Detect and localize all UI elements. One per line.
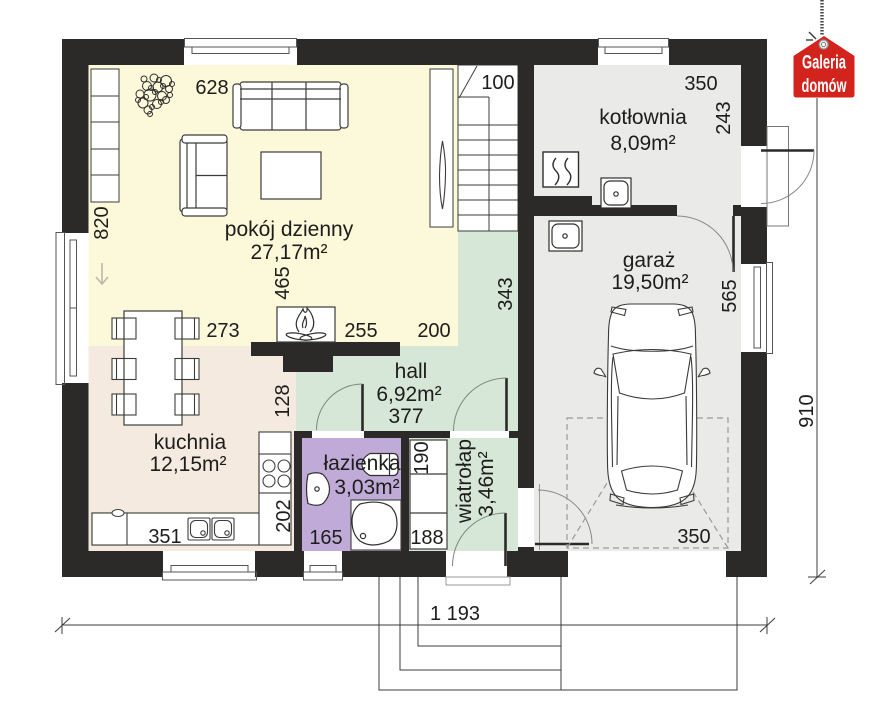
svg-text:351: 351 xyxy=(148,526,181,548)
svg-text:465: 465 xyxy=(272,266,294,299)
svg-text:377: 377 xyxy=(388,405,423,428)
svg-text:273: 273 xyxy=(206,320,239,342)
svg-text:1 193: 1 193 xyxy=(430,603,480,625)
svg-text:domów: domów xyxy=(802,76,847,97)
svg-text:kotłownia: kotłownia xyxy=(599,106,687,129)
svg-text:343: 343 xyxy=(495,277,517,310)
svg-text:350: 350 xyxy=(677,526,710,548)
svg-text:8,09m²: 8,09m² xyxy=(610,132,675,155)
svg-text:wiatrołap: wiatrołap xyxy=(453,439,476,524)
svg-text:garaż: garaż xyxy=(623,249,676,272)
svg-text:Galeria: Galeria xyxy=(802,53,846,74)
svg-text:12,15m²: 12,15m² xyxy=(149,453,226,476)
svg-text:202: 202 xyxy=(273,499,295,532)
svg-text:628: 628 xyxy=(195,77,228,99)
svg-text:100: 100 xyxy=(481,72,514,94)
svg-text:6,92m²: 6,92m² xyxy=(376,383,441,406)
svg-text:19,50m²: 19,50m² xyxy=(611,271,688,294)
svg-text:243: 243 xyxy=(713,101,735,134)
svg-text:3,46m²: 3,46m² xyxy=(475,451,498,516)
svg-text:350: 350 xyxy=(684,73,717,95)
svg-text:pokój dzienny: pokój dzienny xyxy=(225,218,354,241)
svg-text:255: 255 xyxy=(344,320,377,342)
svg-text:565: 565 xyxy=(719,279,741,312)
svg-text:hall: hall xyxy=(395,360,428,383)
svg-text:820: 820 xyxy=(91,206,113,239)
svg-text:910: 910 xyxy=(796,394,818,427)
svg-text:27,17m²: 27,17m² xyxy=(250,241,327,264)
svg-text:188: 188 xyxy=(410,527,443,549)
svg-text:165: 165 xyxy=(309,527,342,549)
svg-text:kuchnia: kuchnia xyxy=(154,431,227,454)
svg-text:190: 190 xyxy=(411,441,433,474)
svg-text:łazienka: łazienka xyxy=(323,452,400,475)
svg-text:128: 128 xyxy=(272,384,294,417)
svg-text:200: 200 xyxy=(417,320,450,342)
svg-text:3,03m²: 3,03m² xyxy=(334,476,399,499)
